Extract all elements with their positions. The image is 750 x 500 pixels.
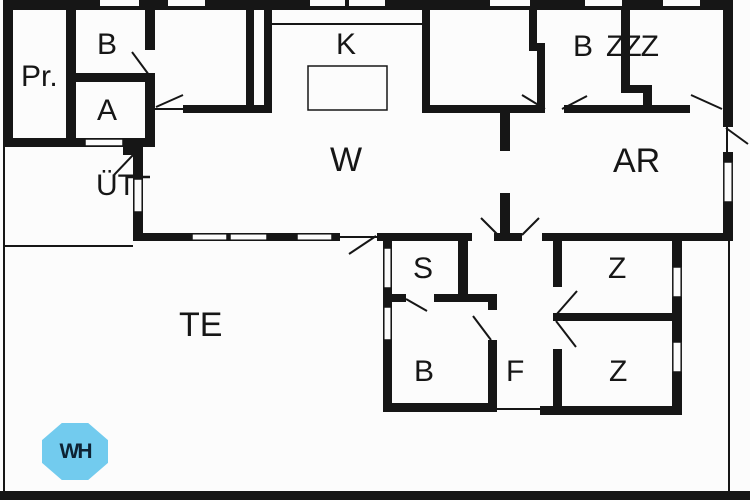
room-label-k: K bbox=[336, 30, 356, 60]
room-label-ar: AR bbox=[613, 144, 660, 178]
room-label-a: A bbox=[97, 96, 117, 126]
room-label-z-lower: Z bbox=[609, 357, 627, 387]
floorplan: Pr. B A K B ZZZ W ÜT AR TE S Z B F Z WH bbox=[0, 0, 750, 500]
room-label-s: S bbox=[413, 254, 433, 284]
room-label-b-top-right: B bbox=[573, 32, 593, 62]
room-label-b-bottom: B bbox=[414, 357, 434, 387]
floorplan-drawing bbox=[0, 0, 750, 500]
room-label-b-top-left: B bbox=[97, 30, 117, 60]
room-label-f: F bbox=[506, 357, 524, 387]
kitchen-counter bbox=[308, 66, 387, 110]
room-label-pr: Pr. bbox=[21, 62, 58, 92]
room-label-z-upper: Z bbox=[608, 254, 626, 284]
room-label-w: W bbox=[330, 143, 362, 177]
room-label-te: TE bbox=[179, 308, 222, 342]
wh-badge-label: WH bbox=[60, 440, 91, 464]
room-label-uet: ÜT bbox=[96, 171, 136, 201]
room-label-zzz: ZZZ bbox=[606, 32, 658, 62]
door-swings bbox=[114, 52, 748, 347]
